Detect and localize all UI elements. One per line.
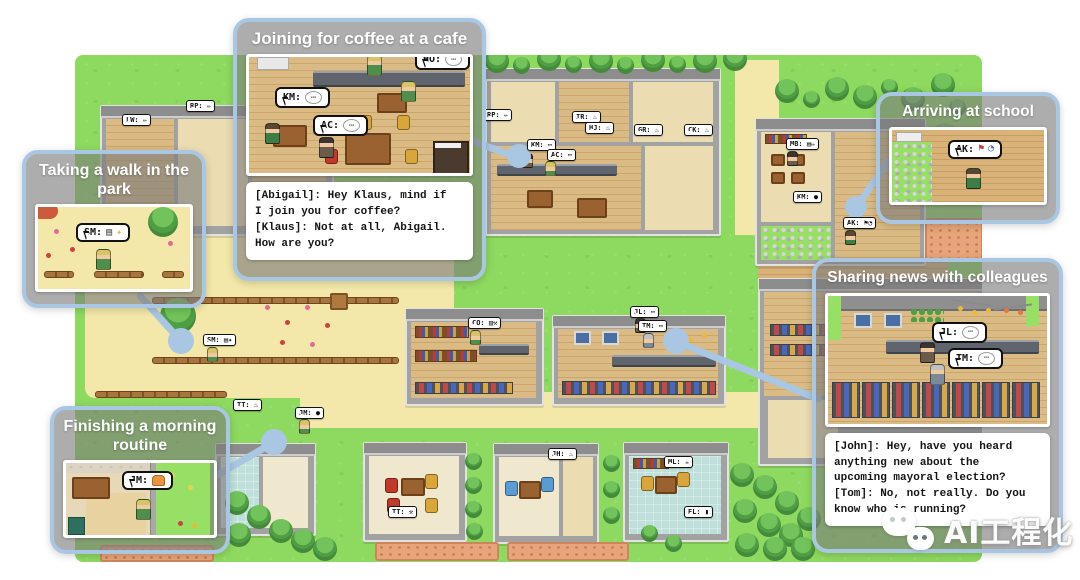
agent-status-bubble: JL: ⋯	[630, 306, 659, 318]
callout-panel-routine: Finishing a morning routine JM:	[50, 406, 230, 554]
sharing-scene: JL:⋯ TM:⋯	[825, 293, 1050, 427]
door	[68, 517, 85, 535]
tree-icon	[803, 91, 820, 108]
chair	[397, 115, 410, 130]
chair	[385, 478, 398, 493]
tree-icon	[825, 77, 849, 101]
agent-character[interactable]	[470, 330, 481, 345]
tree-icon	[466, 523, 483, 540]
wechat-icon	[882, 508, 936, 552]
shelf	[982, 382, 1010, 418]
grass-edge	[828, 296, 841, 340]
agent-status-bubble: TT: ⚒	[388, 506, 417, 518]
picture-frame	[884, 313, 902, 328]
building-house-1	[363, 442, 467, 542]
agent-status-bubble: KM: ●	[793, 191, 822, 203]
screenshot-root: LW: ✏ RP: ✏ RP: ✏ IR: ♨ HJ: ♨ KM: ⋯ AC: …	[0, 0, 1080, 580]
school-yard	[892, 142, 932, 202]
coffee-scene: KM:⋯ AC:⋯ HO:⋯	[246, 54, 473, 176]
shelf	[952, 382, 980, 418]
agent-character[interactable]	[367, 55, 382, 76]
cafe-counter	[313, 71, 465, 87]
clock-icon: ◔	[988, 144, 994, 154]
panel-title: Arriving at school	[880, 96, 1056, 127]
agent-status-bubble: MB: ▤✏	[786, 138, 819, 150]
lantern	[1004, 308, 1009, 313]
tree-icon	[775, 79, 799, 103]
agent-initials: AK:	[956, 144, 974, 155]
agent-initials: KM:	[283, 92, 301, 103]
flag-icon: ⚑	[978, 144, 984, 154]
speech-bubble: AK:⚑◔	[948, 140, 1002, 159]
speech-bubble: JL:⋯	[932, 322, 987, 343]
tree-icon	[665, 535, 682, 552]
chair	[405, 149, 418, 164]
shelf	[562, 381, 716, 395]
flower	[325, 323, 330, 328]
flower	[265, 305, 270, 310]
panel-title: Taking a walk in the park	[26, 154, 202, 204]
table	[655, 476, 677, 494]
tree-icon	[291, 529, 315, 553]
tree-icon	[603, 481, 620, 498]
roof	[364, 443, 466, 455]
tree-icon	[313, 537, 337, 561]
agent-initials: HO:	[423, 54, 441, 65]
connector-dot-routine	[261, 429, 287, 455]
flower	[310, 342, 315, 347]
panel-title: Finishing a morning routine	[54, 410, 226, 460]
cat-icon	[152, 475, 165, 486]
watermark-text: AI工程化	[944, 508, 1073, 552]
connector-dot-walk	[168, 328, 194, 354]
agent-character[interactable]	[920, 342, 935, 363]
speech-bubble: SM:▤✦	[76, 223, 130, 242]
agent-character[interactable]	[787, 151, 798, 166]
callout-panel-school: Arriving at school AK:⚑◔	[876, 92, 1060, 224]
fence	[94, 271, 144, 278]
sparkle-icon: ✦	[116, 228, 122, 238]
plants	[910, 308, 944, 322]
chat-icon: ⋯	[343, 119, 360, 132]
garden-plot	[375, 542, 499, 561]
fence	[152, 357, 399, 364]
tree-icon	[617, 57, 634, 74]
tree-icon	[269, 519, 293, 543]
connector-dot-sharing	[663, 328, 689, 354]
tree-icon	[775, 491, 799, 515]
tree-icon	[757, 513, 781, 537]
speech-bubble: HO:⋯	[415, 54, 470, 70]
tree-icon	[641, 525, 658, 542]
table	[527, 190, 553, 208]
building-house-2	[493, 443, 599, 544]
table	[577, 198, 607, 218]
desk	[771, 154, 785, 166]
agent-status-bubble: CK: ♨	[684, 124, 713, 136]
chair	[425, 474, 438, 489]
picture-frame	[854, 313, 872, 328]
agent-status-bubble: HJ: ♨	[585, 122, 614, 134]
chair	[641, 476, 654, 491]
room-floor	[645, 146, 713, 230]
tree-icon	[513, 57, 530, 74]
chat-icon: ⋯	[445, 54, 462, 66]
walk-scene: SM:▤✦	[35, 204, 193, 292]
shelf	[1012, 382, 1040, 418]
lantern	[986, 308, 991, 313]
bookshelf	[415, 350, 477, 362]
bench	[896, 132, 922, 142]
agent-status-bubble: SM: ▤✦	[203, 334, 236, 346]
agent-status-bubble: AK: ⚑◔	[843, 217, 876, 229]
shelf	[832, 382, 860, 418]
piano-keys	[435, 143, 461, 148]
chat-icon: ⋯	[978, 352, 995, 365]
table	[519, 481, 541, 499]
cafe-table	[257, 57, 289, 70]
red-bush	[35, 204, 58, 219]
tree-icon	[227, 523, 251, 547]
picture-frame	[574, 331, 591, 345]
agent-initials: JL:	[940, 327, 958, 338]
tree-icon	[763, 537, 787, 561]
tree-icon	[465, 453, 482, 470]
agent-initials: SM:	[84, 227, 102, 238]
school-yard	[761, 226, 831, 260]
speech-bubble: TM:⋯	[948, 348, 1003, 369]
desk	[791, 172, 805, 184]
agent-status-bubble: JM: ●	[295, 407, 324, 419]
agent-initials: JM:	[130, 475, 148, 486]
dresser	[72, 477, 110, 499]
agent-character[interactable]	[207, 347, 218, 362]
lantern	[958, 306, 963, 311]
agent-status-bubble: EL: ▮	[684, 506, 713, 518]
agent-character[interactable]	[136, 499, 151, 520]
flower	[280, 340, 285, 345]
agent-status-bubble: RP: ✏	[186, 100, 215, 112]
agent-character[interactable]	[265, 123, 280, 144]
tree-icon	[853, 85, 877, 109]
room-floor	[563, 457, 593, 536]
roof	[494, 444, 598, 456]
tree-icon	[753, 475, 777, 499]
chair	[677, 472, 690, 487]
agent-status-bubble: TT: ♨	[233, 399, 262, 411]
tree-icon	[730, 463, 754, 487]
agent-character[interactable]	[845, 230, 856, 245]
tree-icon	[791, 537, 815, 561]
watermark: AI工程化	[882, 508, 1073, 552]
speech-bubble: JM:	[122, 471, 173, 490]
book-icon: ▤	[106, 228, 112, 238]
fence	[162, 271, 184, 278]
garden-plot	[507, 542, 629, 561]
lantern	[1018, 310, 1023, 315]
roof	[624, 443, 728, 455]
agent-status-bubble: GR: ♨	[634, 124, 663, 136]
light-garland	[702, 333, 707, 338]
routine-scene: JM:	[63, 460, 217, 538]
tree-icon	[465, 501, 482, 518]
agent-character[interactable]	[966, 168, 981, 189]
crate	[330, 293, 348, 310]
agent-character[interactable]	[930, 364, 945, 385]
agent-initials: TM:	[956, 353, 974, 364]
tree-icon	[603, 455, 620, 472]
grass-edge	[1026, 296, 1039, 326]
agent-character[interactable]	[643, 333, 654, 348]
panel-title: Sharing news with colleagues	[816, 262, 1059, 293]
agent-character-sm[interactable]	[96, 249, 111, 270]
bookshelf	[415, 326, 469, 338]
shelf	[862, 382, 890, 418]
flower	[305, 305, 310, 310]
tree-icon	[247, 505, 271, 529]
callout-panel-walk: Taking a walk in the park SM:▤✦	[22, 150, 206, 308]
agent-status-bubble: RP: ✏	[483, 109, 512, 121]
speech-bubble: KM:⋯	[275, 87, 330, 108]
agent-status-bubble: JH: ♨	[548, 448, 577, 460]
dialogue-text: [Abigail]: Hey Klaus, mind if I join you…	[246, 182, 473, 260]
chat-bubble-small	[907, 527, 934, 550]
table	[401, 478, 425, 496]
agent-status-bubble: TM: ⋯	[638, 320, 667, 332]
chair	[425, 498, 438, 513]
chat-icon: ⋯	[962, 326, 979, 339]
chat-icon: ⋯	[305, 91, 322, 104]
shelf	[922, 382, 950, 418]
fence	[95, 391, 227, 398]
connector-dot-school	[845, 196, 867, 218]
speech-bubble: AC:⋯	[313, 115, 368, 136]
agent-status-bubble: CO: ▥⚒	[468, 317, 501, 329]
tree-icon	[603, 507, 620, 524]
picture-frame	[602, 331, 619, 345]
tree-icon	[465, 477, 482, 494]
garden-plot	[925, 218, 982, 262]
agent-status-bubble: LW: ✏	[122, 114, 151, 126]
chair	[541, 477, 554, 492]
store-counter	[612, 355, 716, 367]
fence	[44, 271, 74, 278]
lantern	[972, 310, 977, 315]
shelf	[415, 382, 513, 394]
agent-status-bubble: AC: ⋯	[547, 149, 576, 161]
tree-icon	[735, 533, 759, 557]
tree-icon	[565, 56, 582, 73]
table	[345, 133, 391, 165]
store-counter	[479, 344, 529, 355]
agent-status-bubble: ML: ☕	[664, 456, 693, 468]
tree-icon	[733, 499, 757, 523]
school-scene: AK:⚑◔	[889, 127, 1047, 205]
panel-title: Joining for coffee at a cafe	[237, 22, 482, 54]
agent-initials: AC:	[321, 120, 339, 131]
chair	[505, 481, 518, 496]
tree-icon	[669, 56, 686, 73]
callout-panel-coffee: Joining for coffee at a cafe KM:⋯ AC:⋯	[233, 18, 486, 281]
flower	[285, 320, 290, 325]
agent-character[interactable]	[401, 81, 416, 102]
shelf	[892, 382, 920, 418]
desk	[771, 172, 785, 184]
